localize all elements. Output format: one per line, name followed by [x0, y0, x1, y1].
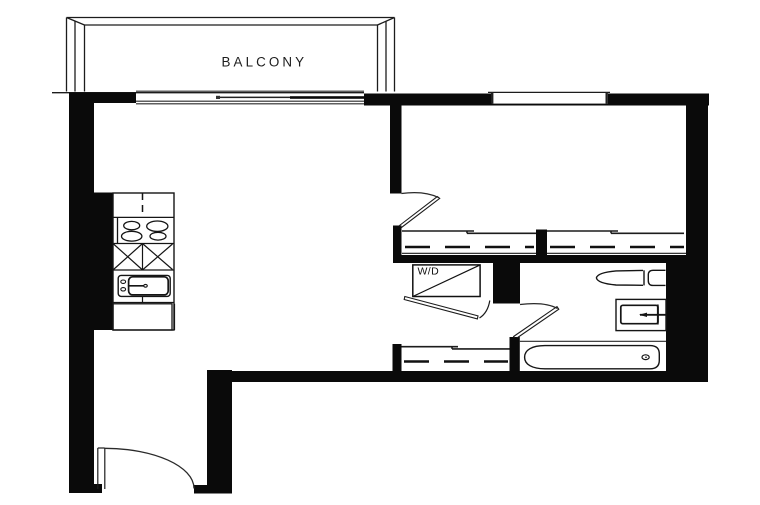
svg-text:BALCONY: BALCONY	[222, 55, 308, 70]
svg-text:W/D: W/D	[418, 266, 440, 278]
